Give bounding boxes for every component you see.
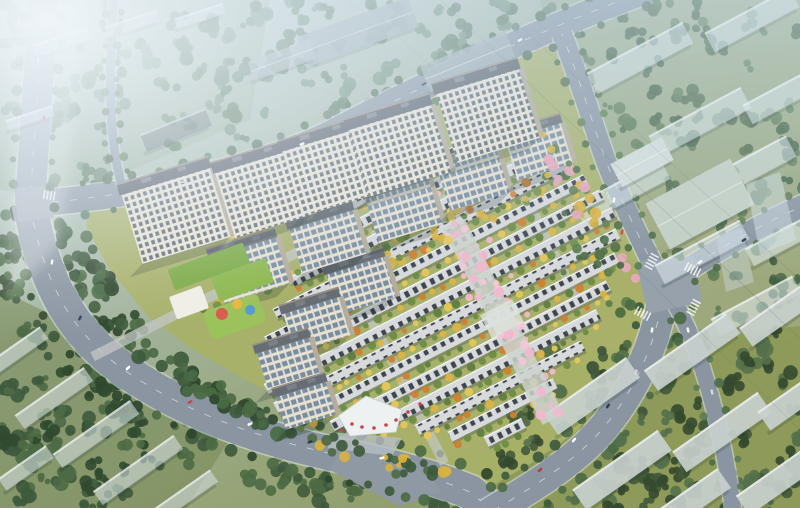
aerial-render-image [0, 0, 800, 508]
aerial-render-viewport: Aerial bird's-eye architectural renderin… [0, 0, 800, 508]
atmosphere-effects [0, 0, 800, 508]
corner-flare [0, 0, 800, 508]
